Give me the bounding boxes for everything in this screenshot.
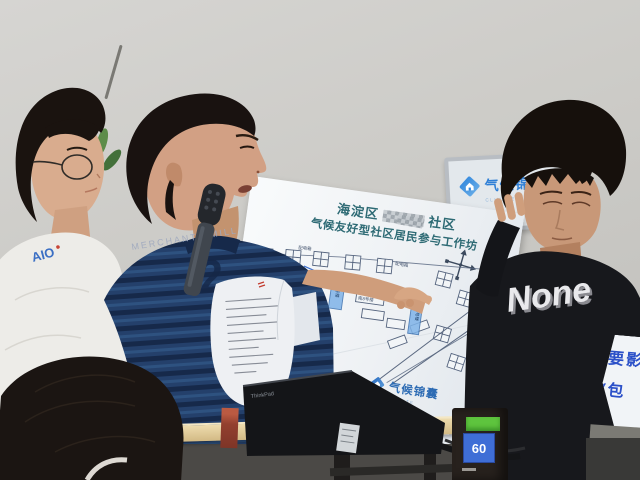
- receiver-display-value: 60: [472, 441, 486, 456]
- receiver-display: 60: [463, 433, 495, 463]
- foreground-head: [0, 352, 195, 480]
- receiver-green-screen: [466, 417, 500, 431]
- receiver-label: [462, 468, 476, 471]
- workshop-photo: 气候锦囊 CLIMATE 海淀区 社区 气候友好型社区居民参与工作坊: [0, 0, 640, 480]
- tv-base: [586, 438, 640, 480]
- receiver-device: 60: [452, 408, 508, 480]
- side-screen-line1: 要影: [607, 344, 640, 371]
- hand-on-poster: [493, 191, 526, 222]
- laptop-sticker: [336, 423, 360, 454]
